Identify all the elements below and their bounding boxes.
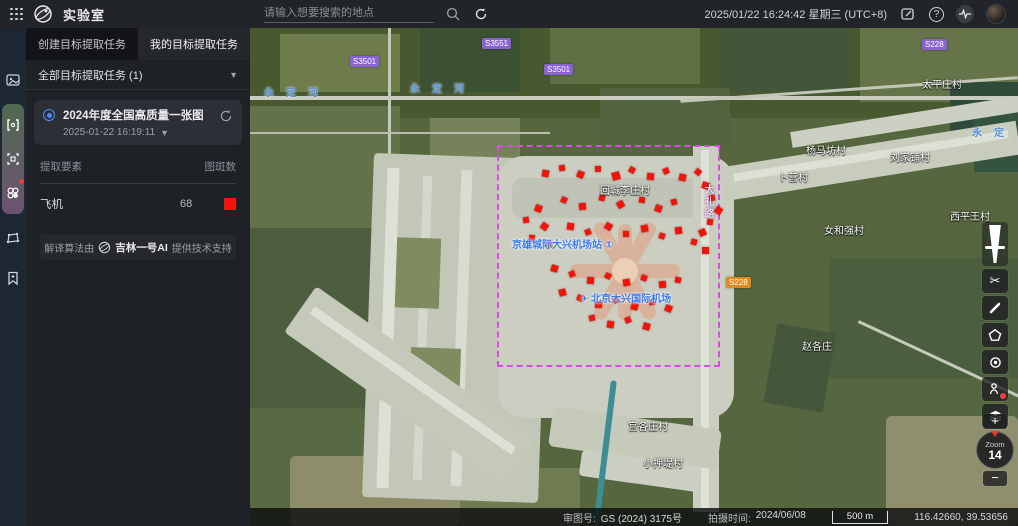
zoom-dial[interactable]: Zoom 14 bbox=[976, 431, 1014, 469]
poi-annotate-button[interactable] bbox=[982, 377, 1008, 401]
task-sync-icon[interactable] bbox=[219, 109, 233, 138]
scissors-icon: ✂ bbox=[990, 273, 1001, 289]
locate-button[interactable] bbox=[982, 350, 1008, 374]
map-license: 审图号: GS (2024) 3175号 bbox=[563, 510, 682, 525]
search-input[interactable] bbox=[264, 5, 434, 23]
clip-scissors-button[interactable]: ✂ bbox=[982, 269, 1008, 293]
task-expand-icon[interactable]: ▼ bbox=[160, 128, 169, 138]
result-table: 提取要素 图斑数 飞机 68 bbox=[26, 145, 250, 224]
map-label: 永定河 bbox=[410, 80, 476, 95]
topbar-left: 实验室 bbox=[0, 4, 250, 24]
task-panel: 创建目标提取任务 我的目标提取任务 全部目标提取任务 (1) ▼ 2024年度全… bbox=[26, 28, 250, 526]
task-radio[interactable] bbox=[43, 109, 55, 121]
table-row[interactable]: 飞机 68 bbox=[40, 184, 236, 224]
tab-create-task[interactable]: 创建目标提取任务 bbox=[26, 28, 138, 60]
map-label: 卜营村 bbox=[778, 169, 808, 184]
filter-label: 全部目标提取任务 (1) bbox=[38, 67, 143, 83]
target-detect-icon[interactable] bbox=[2, 178, 24, 208]
activity-icon[interactable] bbox=[956, 5, 974, 23]
road-badge: S3551 bbox=[482, 38, 511, 49]
class-name: 飞机 bbox=[40, 196, 180, 212]
area-select-icon[interactable] bbox=[2, 144, 24, 174]
map-label: 永定 bbox=[972, 124, 1016, 139]
tab-my-tasks[interactable]: 我的目标提取任务 bbox=[138, 28, 250, 60]
algorithm-credit[interactable]: 解译算法由 吉林一号AI 提供技术支持 bbox=[40, 234, 236, 260]
class-swatch[interactable] bbox=[224, 198, 236, 210]
jilin-logo-icon bbox=[98, 241, 111, 254]
app-title: 实验室 bbox=[63, 5, 105, 24]
task-filter-dropdown[interactable]: 全部目标提取任务 (1) ▼ bbox=[26, 60, 250, 90]
credit-suffix: 提供技术支持 bbox=[172, 240, 232, 255]
credit-prefix: 解译算法由 bbox=[44, 240, 94, 255]
map-toolbar: ✂ bbox=[982, 222, 1008, 428]
credit-brand: 吉林一号AI bbox=[115, 240, 168, 255]
zoom-out-button[interactable]: − bbox=[983, 471, 1007, 486]
refresh-icon[interactable] bbox=[472, 5, 490, 23]
map-label: 小押堤村 bbox=[643, 455, 683, 470]
task-card[interactable]: 2024年度全国高质量一张图 2025-01-22 16:19:11 ▼ bbox=[34, 100, 242, 145]
map-label: 永定河 bbox=[264, 84, 330, 99]
pencil-icon bbox=[988, 301, 1002, 315]
notification-dot bbox=[19, 179, 24, 184]
poi-badge-dot bbox=[1000, 393, 1006, 399]
task-datetime: 2025-01-22 16:19:11 bbox=[63, 127, 155, 138]
scale-bar: 500 m bbox=[832, 511, 888, 524]
map-label: 刘家铺村 bbox=[890, 149, 930, 164]
task-title: 2024年度全国高质量一张图 bbox=[63, 107, 211, 123]
class-count: 68 bbox=[180, 198, 224, 210]
road-badge: S3501 bbox=[350, 56, 379, 67]
zoom-in-button[interactable]: + bbox=[983, 414, 1007, 429]
zoom-controls: + Zoom 14 − bbox=[982, 414, 1008, 486]
zoom-level: 14 bbox=[988, 449, 1001, 462]
split-compare-icon[interactable] bbox=[2, 110, 24, 140]
app-window: 实验室 2025/01/22 16:24:42 星期三 (UTC+8) ? bbox=[0, 0, 1018, 526]
apps-grid-icon[interactable] bbox=[10, 8, 23, 21]
slider-handle[interactable] bbox=[985, 246, 1005, 249]
panel-tabs: 创建目标提取任务 我的目标提取任务 bbox=[26, 28, 250, 60]
swipe-opacity-slider[interactable] bbox=[982, 222, 1008, 266]
opacity-wedge-icon bbox=[988, 225, 1002, 263]
crosshair-icon bbox=[988, 355, 1003, 370]
col-count-header: 图斑数 bbox=[205, 159, 237, 174]
search-box bbox=[264, 5, 490, 23]
map-label: 杨马坊村 bbox=[806, 142, 846, 157]
rail-highlight-group bbox=[2, 104, 24, 214]
avatar[interactable] bbox=[986, 4, 1006, 24]
zoom-pointer-icon bbox=[991, 431, 999, 437]
search-icon[interactable] bbox=[444, 5, 462, 23]
capture-date: 拍摄时间: 2024/06/08 bbox=[708, 510, 806, 525]
map-label: 西平王村 bbox=[950, 208, 990, 223]
topbar: 实验室 2025/01/22 16:24:42 星期三 (UTC+8) ? bbox=[0, 0, 1018, 28]
topbar-right: 2025/01/22 16:24:42 星期三 (UTC+8) ? bbox=[704, 4, 1018, 24]
map-label: 女和强村 bbox=[824, 222, 864, 237]
map-label: 宫各庄村 bbox=[628, 418, 668, 433]
map-label: 回城李庄村 bbox=[600, 182, 650, 197]
col-element-header: 提取要素 bbox=[40, 159, 82, 174]
bookmark-add-icon[interactable] bbox=[2, 263, 24, 293]
road-badge: S228 bbox=[922, 39, 947, 50]
map-labels-layer: 太平庄村杨马坊村刘家铺村卜营村回城李庄村西平王村女和强村京雄城际大兴机场站 ①✈… bbox=[250, 28, 1018, 526]
image-layer-icon[interactable] bbox=[2, 65, 24, 95]
chevron-down-icon: ▼ bbox=[229, 70, 238, 80]
datetime-display: 2025/01/22 16:24:42 星期三 (UTC+8) bbox=[704, 6, 887, 22]
map-label: 太平庄村 bbox=[922, 76, 962, 91]
cursor-coordinates: 116.42660, 39.53656 bbox=[914, 512, 1008, 523]
left-rail bbox=[0, 28, 26, 526]
map-label: ✈ 北京大兴国际机场 bbox=[580, 290, 671, 305]
polygon-draw-icon[interactable] bbox=[2, 223, 24, 253]
map-label: 京雄城际大兴机场站 ① bbox=[512, 236, 613, 251]
map-canvas[interactable]: 太平庄村杨马坊村刘家铺村卜营村回城李庄村西平王村女和强村京雄城际大兴机场站 ①✈… bbox=[250, 28, 1018, 526]
note-edit-icon[interactable] bbox=[899, 5, 917, 23]
pentagon-icon bbox=[988, 328, 1002, 342]
app-logo-icon bbox=[33, 4, 53, 24]
road-badge: S3501 bbox=[544, 64, 573, 75]
road-label-vertical: 大礼路 bbox=[700, 184, 715, 220]
measure-draw-button[interactable] bbox=[982, 296, 1008, 320]
road-badge: S228 bbox=[726, 277, 751, 288]
map-label: 赵各庄 bbox=[802, 338, 832, 353]
statusbar: 审图号: GS (2024) 3175号 拍摄时间: 2024/06/08 50… bbox=[250, 508, 1018, 526]
polygon-query-button[interactable] bbox=[982, 323, 1008, 347]
help-icon[interactable]: ? bbox=[929, 7, 944, 22]
